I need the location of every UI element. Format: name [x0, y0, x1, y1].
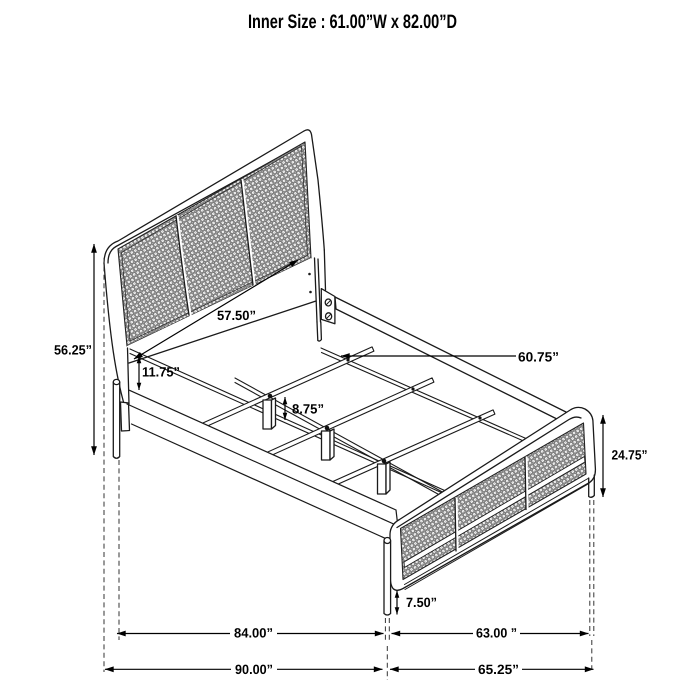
svg-text:57.50”: 57.50” [217, 308, 256, 323]
svg-text:84.00”: 84.00” [234, 626, 273, 641]
svg-text:7.50”: 7.50” [406, 595, 437, 610]
svg-text:Inner Size : 61.00”W x 82.00”D: Inner Size : 61.00”W x 82.00”D [248, 11, 457, 33]
svg-text:60.75”: 60.75” [518, 350, 559, 365]
svg-text:24.75”: 24.75” [612, 448, 648, 463]
svg-text:65.25”: 65.25” [478, 662, 519, 677]
svg-text:11.75”: 11.75” [142, 365, 180, 380]
svg-text:8.75”: 8.75” [292, 402, 324, 417]
svg-text:63.00 ”: 63.00 ” [476, 626, 517, 641]
svg-text:56.25”: 56.25” [54, 343, 92, 358]
svg-text:90.00”: 90.00” [235, 662, 273, 677]
